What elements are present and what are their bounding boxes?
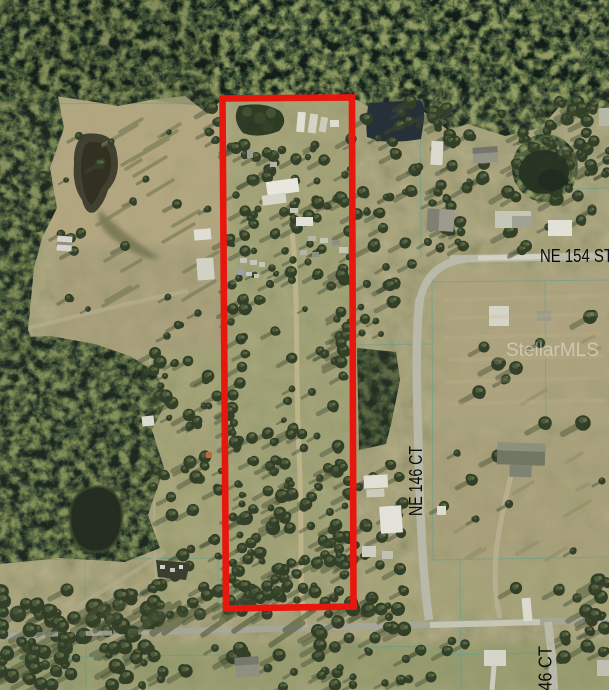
- svg-text:146 CT: 146 CT: [536, 646, 556, 690]
- svg-text:NE 154 ST: NE 154 ST: [540, 246, 609, 266]
- svg-text:NE 146 CT: NE 146 CT: [406, 446, 426, 516]
- svg-text:StellarMLS: StellarMLS: [506, 340, 599, 361]
